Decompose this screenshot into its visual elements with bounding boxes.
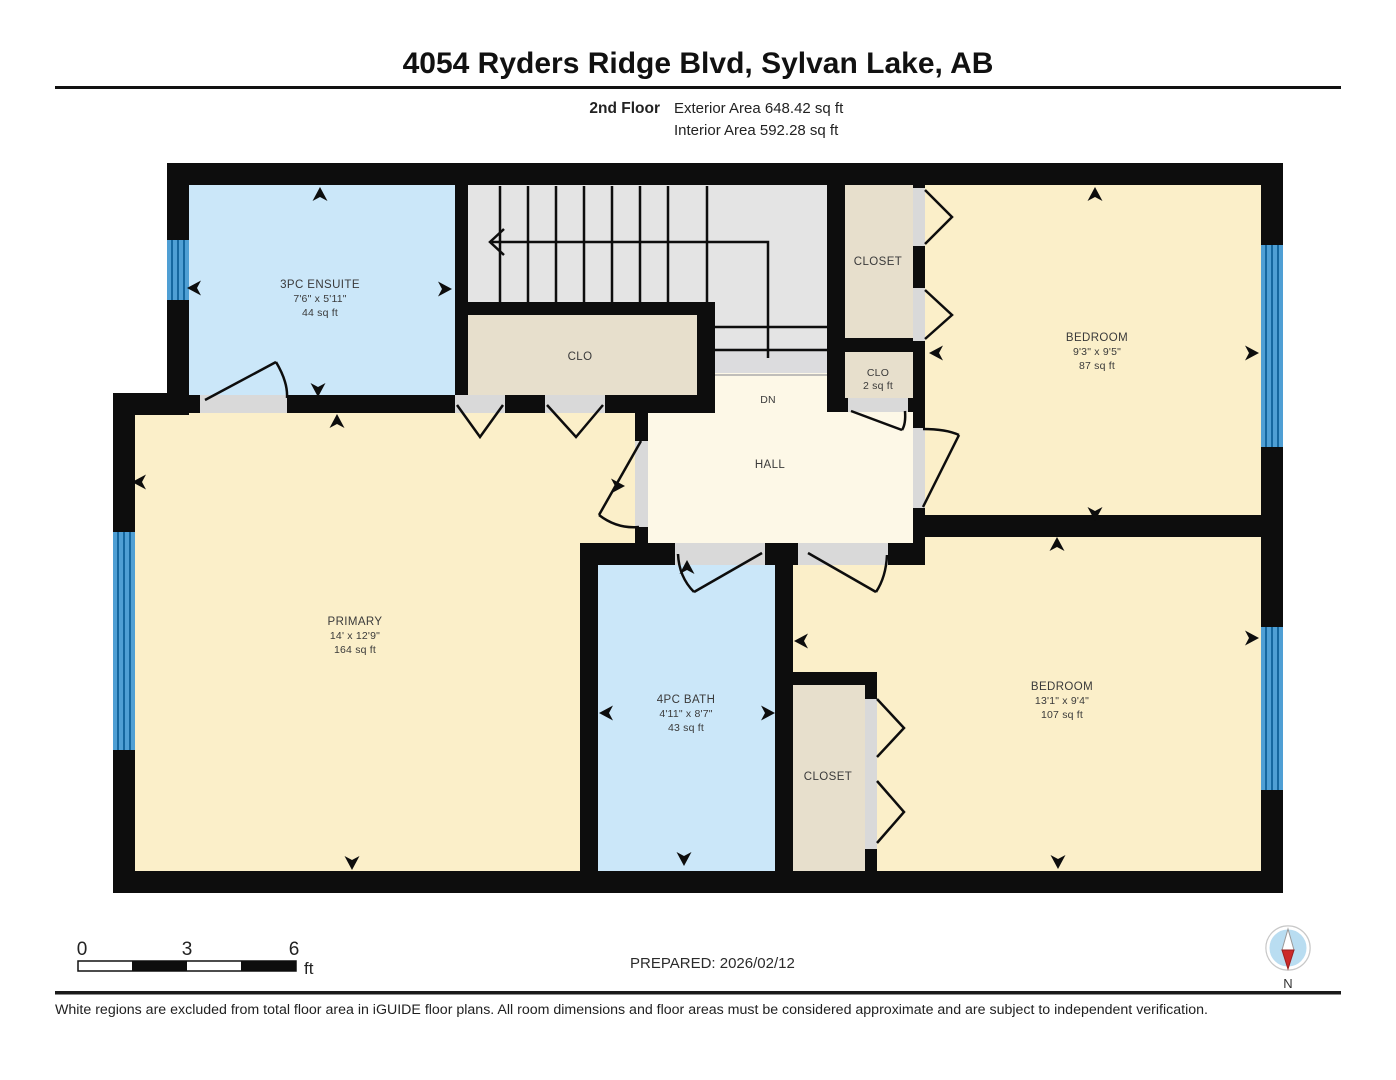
floor-plan-svg: 4054 Ryders Ridge Blvd, Sylvan Lake, AB … [0,0,1396,1080]
scale-bar: 0 3 6 ft [77,939,314,978]
compass-north-label: N [1283,976,1292,991]
header: 4054 Ryders Ridge Blvd, Sylvan Lake, AB … [55,47,1341,139]
scale-tick-6: 6 [289,939,300,960]
hall-stair-throat [715,373,827,412]
scale-bar-segment [241,961,296,971]
clo-bifold-opening-1 [455,395,505,413]
ensuite-dims: 7'6" x 5'11" [293,293,346,305]
header-divider [55,86,1341,89]
ensuite-name: 3PC ENSUITE [280,279,360,291]
floor-label: 2nd Floor [589,100,660,117]
clo-bifold-opening-2 [545,395,605,413]
primary-dims: 14' x 12'9" [330,630,380,642]
scale-tick-3: 3 [182,939,193,960]
scale-bar-segment [132,961,187,971]
bedroom-top-window [1261,245,1283,447]
scale-tick-0: 0 [77,939,88,960]
hall-label: HALL [755,459,786,471]
stairs-dn-label: DN [760,394,776,406]
hall-room [648,412,913,543]
bedroom-bottom-dims: 13'1" x 9'4" [1035,695,1089,707]
footer-divider [55,991,1341,995]
floor-plan-page: 4054 Ryders Ridge Blvd, Sylvan Lake, AB … [0,0,1396,1080]
page-title: 4054 Ryders Ridge Blvd, Sylvan Lake, AB [403,47,994,80]
prepared-date: PREPARED: 2026/02/12 [630,955,795,972]
ensuite-area: 44 sq ft [302,307,338,319]
footer: PREPARED: 2026/02/12 N White regions are… [55,926,1341,1018]
primary-window [113,532,135,750]
bedroom-bottom-window [1261,627,1283,790]
bedroom-top-area: 87 sq ft [1079,360,1115,372]
primary-name: PRIMARY [328,616,383,628]
compass-icon [1266,926,1310,970]
bedroom-top-dims: 9'3" x 9'5" [1073,346,1121,358]
stairs-landing-lower [715,348,827,375]
clo-small-door-opening [848,398,908,412]
bedroom-top-door-opening [913,428,925,508]
closet-top-label: CLOSET [854,256,902,268]
disclaimer-text: White regions are excluded from total fl… [55,1002,1208,1018]
closet-top-bifold-opening-2 [913,288,925,341]
bath-dims: 4'11" x 8'7" [659,708,712,720]
bedroom-top-name: BEDROOM [1066,332,1128,344]
bath-area: 43 sq ft [668,722,704,734]
ensuite-door-opening [200,395,287,413]
exterior-area-label: Exterior Area 648.42 sq ft [674,100,844,117]
interior-area-label: Interior Area 592.28 sq ft [674,122,839,139]
bath-name: 4PC BATH [657,694,716,706]
clo-under-stairs-label: CLO [568,351,593,363]
bedroom-bottom-area: 107 sq ft [1041,709,1083,721]
clo-small-label: CLO [867,367,889,379]
bath-door-opening [675,543,765,565]
primary-room [135,413,635,871]
bedroom-bottom-name: BEDROOM [1031,681,1093,693]
closet-bottom-label: CLOSET [804,771,852,783]
primary-area: 164 sq ft [334,644,376,656]
ensuite-window [167,240,189,300]
primary-door-opening [635,441,648,527]
scale-unit: ft [304,959,314,978]
stairs-upper-flight [468,185,827,302]
closet-top-bifold-opening-1 [913,188,925,246]
bedroom-bottom-upper-strip [925,537,1261,565]
clo-small-area: 2 sq ft [863,380,893,392]
